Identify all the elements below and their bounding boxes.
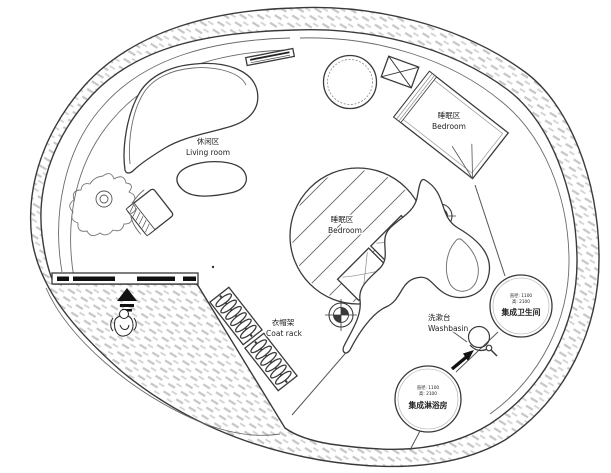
living-room-label-zh: 休闲区 bbox=[197, 136, 220, 146]
glass-wall bbox=[52, 273, 198, 284]
toilet-pod-name: 集成卫生间 bbox=[501, 307, 541, 317]
plant-icon bbox=[70, 174, 136, 236]
direction-arrow-icon bbox=[452, 350, 474, 369]
round-table bbox=[324, 56, 377, 109]
shower-pod-spec1: 直径: 1100 bbox=[417, 384, 440, 391]
coffee-table bbox=[177, 162, 247, 196]
living-room-label-en: Living room bbox=[186, 148, 230, 157]
bedroom-top-label-en: Bedroom bbox=[432, 122, 466, 131]
toilet-pod-spec2: 高: 2100 bbox=[512, 298, 530, 305]
coat-rack-label-zh: 衣帽架 bbox=[272, 317, 295, 327]
bedroom-center-label-en: Bedroom bbox=[328, 226, 362, 235]
floor-plan-drawing: 直径: 1100 高: 2100 集成卫生间 直径: 1100 高: 2100 … bbox=[0, 0, 611, 473]
dot-mark bbox=[212, 266, 214, 268]
shower-pod-name: 集成淋浴房 bbox=[408, 400, 448, 410]
crossed-box-icon bbox=[381, 56, 419, 88]
lounge-chair bbox=[120, 185, 173, 238]
toilet-pod: 直径: 1100 高: 2100 集成卫生间 bbox=[490, 275, 552, 337]
shower-pod-spec2: 高: 2100 bbox=[419, 390, 437, 397]
washbasin-label-en: Washbasin bbox=[428, 324, 469, 333]
bedroom-center-label-zh: 睡眠区 bbox=[331, 215, 354, 224]
coat-rack-label-en: Coat rack bbox=[266, 329, 303, 338]
toilet-pod-spec1: 直径: 1100 bbox=[510, 292, 533, 299]
washbasin-label-zh: 洗漱台 bbox=[428, 312, 451, 322]
shower-pod: 直径: 1100 高: 2100 集成淋浴房 bbox=[395, 366, 461, 432]
bedroom-top-label-zh: 睡眠区 bbox=[438, 111, 461, 120]
floor-plan-canvas: 直径: 1100 高: 2100 集成卫生间 直径: 1100 高: 2100 … bbox=[0, 0, 611, 473]
